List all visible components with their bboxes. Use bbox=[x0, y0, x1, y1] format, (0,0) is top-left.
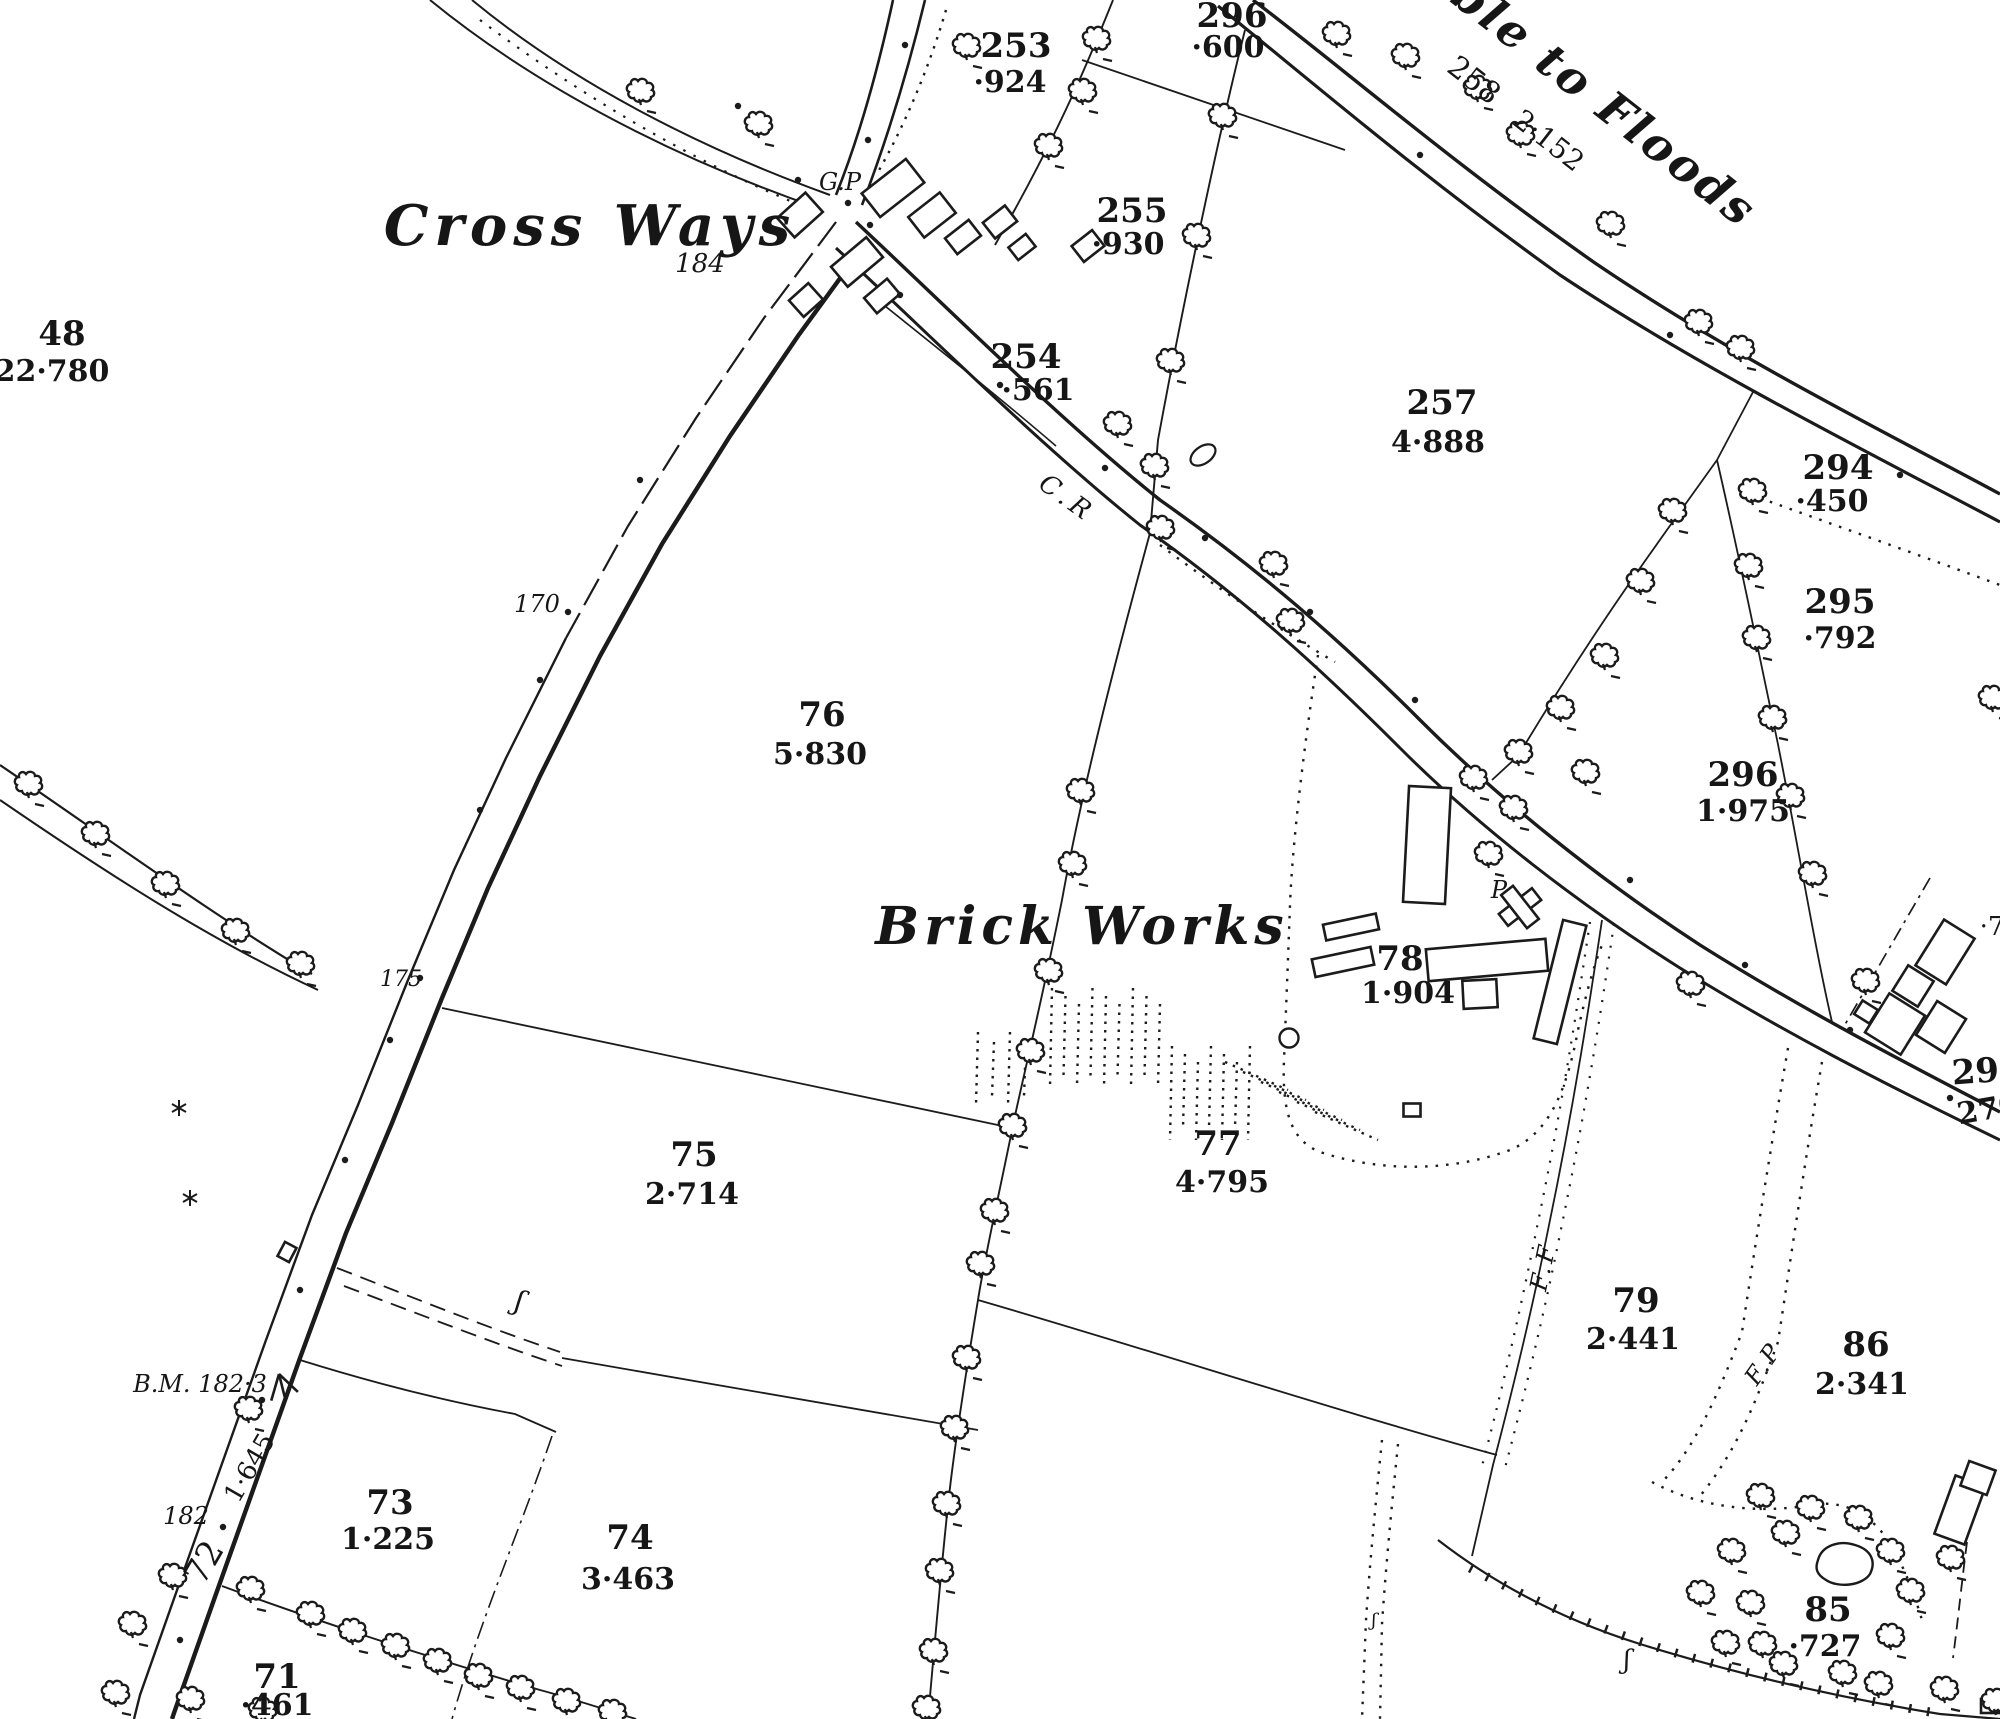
boundary-mereing-dot bbox=[1307, 609, 1313, 615]
boundary-74-75 bbox=[562, 1358, 978, 1430]
boundary-mereing-dot bbox=[1742, 962, 1748, 968]
hedgerow-tree-icon bbox=[465, 1664, 494, 1698]
parcel-257-area: 4·888 bbox=[1391, 425, 1485, 460]
parcel-86-area: 2·341 bbox=[1815, 1367, 1909, 1402]
hamlet-building bbox=[945, 220, 981, 254]
parcel-71-area: ·461 bbox=[240, 1688, 313, 1719]
annotation-brace-mark-1: ʃ bbox=[506, 1282, 532, 1319]
hedgerow-tree-icon bbox=[1500, 796, 1529, 830]
parcel-75-area: 2·714 bbox=[645, 1177, 739, 1212]
brickworks-building bbox=[1403, 786, 1451, 904]
stipple-strip bbox=[1243, 1072, 1306, 1100]
lane-west-line-1 bbox=[0, 765, 312, 974]
parcel-295-number: 295 bbox=[1805, 582, 1876, 622]
hedgerow-tree-icon bbox=[1982, 1689, 2000, 1719]
boundary-mereing-dot bbox=[865, 137, 871, 143]
brickworks-building bbox=[1323, 914, 1379, 941]
hedgerow-tree-icon bbox=[1659, 499, 1688, 533]
annotation-road-area-1645: 1·645 bbox=[218, 1428, 281, 1507]
track-75-dashed-1 bbox=[337, 1268, 560, 1352]
stipple-strip bbox=[1183, 1054, 1185, 1128]
parcel-76-area: 5·830 bbox=[773, 737, 867, 772]
footpath-fp-dotted-1 bbox=[1662, 1048, 1788, 1482]
hamlet-building bbox=[864, 279, 900, 314]
parcel-86-number: 86 bbox=[1842, 1325, 1889, 1365]
pond-orchard bbox=[1817, 1543, 1873, 1585]
bushes bbox=[172, 1100, 197, 1206]
hedgerow-tree-icon bbox=[1069, 79, 1098, 113]
parcel-85-area: ·727 bbox=[1788, 1629, 1861, 1664]
parcel-77-number: 77 bbox=[1194, 1124, 1241, 1164]
road-north-arm-west-line bbox=[836, 0, 893, 195]
hedgerow-tree-icon bbox=[1829, 1661, 1858, 1695]
parcel-297-area: 270 bbox=[1954, 1087, 2000, 1132]
parcel-73-number: 73 bbox=[366, 1483, 413, 1523]
footpaths bbox=[1160, 545, 1922, 1719]
hedgerow-tree-icon bbox=[177, 1687, 206, 1719]
hedgerow-tree-icon bbox=[1505, 740, 1534, 774]
parcel-78-area: 1·904 bbox=[1361, 976, 1455, 1011]
hedgerow-tree-icon bbox=[382, 1634, 411, 1668]
hedgerow-tree-icon bbox=[913, 1696, 942, 1719]
hedgerow-tree-icon bbox=[339, 1619, 368, 1653]
stipple-strip bbox=[976, 1032, 978, 1104]
place-name-cross-ways: Cross Ways bbox=[384, 193, 796, 259]
hedgerow-tree-icon bbox=[999, 1114, 1028, 1148]
hamlet-building bbox=[862, 159, 925, 217]
boundary-mereing-dot bbox=[1897, 472, 1903, 478]
hedgerow-tree-icon bbox=[1260, 552, 1289, 586]
parcel-253-number: 253 bbox=[981, 26, 1052, 66]
parcel-77-area: 4·795 bbox=[1175, 1165, 1269, 1200]
annotation-bench-mark-value: B.M. 182·3 bbox=[132, 1370, 267, 1398]
hedgerow-tree-icon bbox=[1735, 554, 1764, 588]
hedgerow-tree-icon bbox=[287, 952, 316, 986]
hedgerow-tree-icon bbox=[507, 1676, 536, 1710]
hedgerow-tree-icon bbox=[1759, 706, 1788, 740]
hedgerow-tree-icon bbox=[1877, 1624, 1906, 1658]
outlying-building bbox=[1916, 1001, 1966, 1053]
stipple-strip bbox=[992, 1042, 994, 1096]
stipple-strip bbox=[1261, 1082, 1324, 1110]
annotation-edge-fragment-7: ·7 bbox=[1980, 912, 2000, 942]
stipple-strip bbox=[1091, 988, 1093, 1076]
hedgerow-tree-icon bbox=[82, 822, 111, 856]
hedgerow-tree-icon bbox=[1712, 1631, 1741, 1665]
stipple-strip bbox=[1145, 996, 1147, 1076]
hedge-bottom-right bbox=[1438, 1540, 2000, 1719]
parcel-78-number: 78 bbox=[1376, 939, 1423, 979]
annotation-brace-mark-3: ʃ bbox=[1368, 1610, 1380, 1631]
kiln-circle bbox=[1280, 1029, 1299, 1048]
parcel-295-area: ·792 bbox=[1803, 621, 1876, 656]
place-name-brick-works: Brick Works bbox=[873, 896, 1288, 957]
hedgerow-tree-icon bbox=[1083, 27, 1112, 61]
brickworks-building bbox=[1312, 947, 1374, 977]
hedgerow-tree-icon bbox=[1597, 212, 1626, 246]
hedgerow-tree-icon bbox=[1392, 44, 1421, 78]
parcel-257-number: 257 bbox=[1407, 383, 1478, 423]
annotation-fp-abbrev: F.P bbox=[1738, 1337, 1788, 1391]
hedgerow-tree-icon bbox=[981, 1199, 1010, 1233]
hedgerow-tree-icon bbox=[15, 772, 44, 806]
hedgerow-tree-icon bbox=[1059, 852, 1088, 886]
hamlet-building bbox=[1008, 234, 1035, 260]
hedgerow-tree-icon bbox=[1209, 104, 1238, 138]
os-map-sheet: Cross WaysBrick Worksble to Floods2582·1… bbox=[0, 0, 2000, 1719]
road-main-west-line bbox=[566, 222, 836, 638]
hedgerow-tree-icon bbox=[1897, 1579, 1926, 1613]
hedgerow-tree-icon bbox=[1979, 686, 2000, 720]
hedgerow-tree-icon bbox=[1739, 479, 1768, 513]
roads bbox=[0, 0, 2000, 1719]
annotation-road-parcel-258: 258 bbox=[1441, 49, 1508, 112]
parcel-79-area: 2·441 bbox=[1586, 1322, 1680, 1357]
hedgerow-tree-icon bbox=[1747, 1484, 1776, 1518]
stipple-strip bbox=[1064, 996, 1066, 1076]
stipple-strip bbox=[1118, 1004, 1120, 1076]
parcel-73-area: 1·225 bbox=[341, 1522, 435, 1557]
boundary-mereing-dot bbox=[735, 103, 741, 109]
parcel-254-number: 254 bbox=[991, 337, 1062, 377]
hedgerow-tree-icon bbox=[953, 1346, 982, 1380]
parcel-255-area: ·930 bbox=[1091, 227, 1164, 262]
stipple-strip bbox=[1158, 1004, 1160, 1086]
stipple-strip bbox=[1248, 1046, 1250, 1140]
boundary-75-76 bbox=[442, 1008, 1012, 1128]
boundary-mereing-dot bbox=[565, 609, 571, 615]
bush-star-icon bbox=[183, 1190, 197, 1206]
parcel-255-number: 255 bbox=[1097, 191, 1168, 231]
boundary-mereing-dot bbox=[1627, 877, 1633, 883]
hedgerow-tree-icon bbox=[1718, 1539, 1747, 1573]
hedgerow-tree-icon bbox=[237, 1577, 266, 1611]
hedgerow-tree-icon bbox=[953, 34, 982, 68]
boundary-mereing-dot bbox=[845, 200, 851, 206]
footpath-bottom-dotted-2 bbox=[1380, 1444, 1398, 1719]
hedgerow-tree-icon bbox=[1931, 1677, 1960, 1711]
hedgerow-tree-icon bbox=[1572, 760, 1601, 794]
annotation-pump: P bbox=[1490, 876, 1508, 904]
boundary-mereing-dot bbox=[297, 1287, 303, 1293]
hedgerow-tree-icon bbox=[1743, 626, 1772, 660]
map-canvas: Cross WaysBrick Worksble to Floods2582·1… bbox=[0, 0, 2000, 1719]
hedgerow-tree-icon bbox=[1627, 569, 1656, 603]
annotation-ff-abbrev: F.F bbox=[1524, 1239, 1562, 1294]
hedgerow-tree-icon bbox=[1183, 224, 1212, 258]
stipple-strip bbox=[1315, 1112, 1378, 1140]
parcel-48-area: 22·780 bbox=[0, 354, 109, 389]
boundary-mereing-dot bbox=[1412, 697, 1418, 703]
annotation-altitude-175: 175 bbox=[380, 967, 422, 992]
boundary-mereing-dot bbox=[637, 477, 643, 483]
hedgerow-tree-icon bbox=[1035, 959, 1064, 993]
boundary-mereing-dot bbox=[342, 1157, 348, 1163]
lane-northwest-line-1 bbox=[430, 0, 818, 208]
boundary-73-top bbox=[300, 1360, 556, 1432]
boundary-mereing-dot bbox=[477, 807, 483, 813]
footpath-bottom-dotted-1 bbox=[1362, 1440, 1382, 1719]
pond-small bbox=[1187, 440, 1220, 470]
parcel-253-area: ·924 bbox=[973, 65, 1046, 100]
boundary-76-77-hedge bbox=[928, 533, 1150, 1719]
stipple-strip bbox=[1225, 1062, 1288, 1090]
road-floods-north-line bbox=[1253, 0, 2000, 494]
survey-dots bbox=[177, 42, 1953, 1643]
annotation-guide-post: G.P bbox=[819, 168, 862, 196]
trees bbox=[15, 22, 2000, 1719]
hedgerow-tree-icon bbox=[119, 1612, 148, 1646]
parcel-74-area: 3·463 bbox=[581, 1562, 675, 1597]
hedgerow-tree-icon bbox=[1737, 1591, 1766, 1625]
footpath-dotted-south-of-road bbox=[1160, 545, 1335, 662]
boundary-295-296-hedge bbox=[1717, 460, 1832, 1022]
outlying-building bbox=[278, 1242, 297, 1262]
boundary-mereing-dot bbox=[1102, 465, 1108, 471]
hedgerow-tree-icon bbox=[1772, 1521, 1801, 1555]
lane-west-line-2 bbox=[0, 800, 318, 990]
hedgerow-tree-icon bbox=[1323, 22, 1352, 56]
hedgerow-tree-icon bbox=[1799, 862, 1828, 896]
hedgerow-tree-icon bbox=[1104, 412, 1133, 446]
boundary-mereing-dot bbox=[795, 177, 801, 183]
boundary-ff-fence bbox=[1472, 920, 1602, 1556]
hedgerow-tree-icon bbox=[1687, 1581, 1716, 1615]
parcel-296-area: ·600 bbox=[1191, 30, 1264, 65]
boundary-mereing-dot bbox=[1667, 332, 1673, 338]
hedgerow-tree-icon bbox=[599, 1700, 628, 1719]
hedgerow-tree-icon bbox=[1852, 969, 1881, 1003]
labels: Cross WaysBrick Worksble to Floods2582·1… bbox=[0, 0, 2000, 1719]
boundary-mereing-dot bbox=[902, 42, 908, 48]
hedgerow-tree-icon bbox=[1727, 336, 1756, 370]
hedgerow-tree-icon bbox=[1591, 644, 1620, 678]
parcel-294-number: 294 bbox=[1803, 448, 1874, 488]
boundary-mereing-dot bbox=[1417, 152, 1423, 158]
hamlet-building bbox=[983, 206, 1017, 239]
hedgerow-tree-icon bbox=[1017, 1039, 1046, 1073]
bush-star-icon bbox=[172, 1100, 186, 1116]
parcel-74-number: 74 bbox=[606, 1518, 653, 1558]
parcel-79-number: 79 bbox=[1612, 1281, 1659, 1321]
boundary-mereing-dot bbox=[867, 222, 873, 228]
parcel-75-number: 75 bbox=[670, 1135, 717, 1175]
parcel-294-area: ·450 bbox=[1795, 484, 1868, 519]
hedgerow-tree-icon bbox=[933, 1492, 962, 1526]
hedgerow-tree-icon bbox=[627, 79, 656, 113]
hedgerow-tree-icon bbox=[297, 1602, 326, 1636]
boundary-mereing-dot bbox=[220, 1524, 226, 1530]
stipple-strip bbox=[1131, 988, 1133, 1086]
boundary-mereing-dot bbox=[1847, 1027, 1853, 1033]
hedgerow-tree-icon bbox=[1685, 310, 1714, 344]
hedgerow-tree-icon bbox=[1845, 1506, 1874, 1540]
stipple-strip bbox=[1077, 1004, 1079, 1086]
hedgerow-tree-icon bbox=[424, 1649, 453, 1683]
boundary-mereing-dot bbox=[1947, 1095, 1953, 1101]
annotation-cr-abbrev: C.R bbox=[1033, 468, 1101, 529]
hedgerow-tree-icon bbox=[1937, 1546, 1966, 1580]
stipple-strip bbox=[1170, 1046, 1172, 1140]
hedgerow-tree-icon bbox=[745, 112, 774, 146]
boundary-mereing-dot bbox=[537, 677, 543, 683]
hedgerow-tree-icon bbox=[920, 1639, 949, 1673]
stipple-strip bbox=[1050, 988, 1052, 1086]
annotation-altitude-170: 170 bbox=[514, 590, 560, 618]
stipple-strip bbox=[1297, 1102, 1360, 1130]
hedgerow-tree-icon bbox=[1475, 842, 1504, 876]
place-name-liable-to-floods: ble to Floods bbox=[1442, 0, 1768, 238]
parcel-297-number: 297 bbox=[1950, 1049, 2000, 1094]
stipple-strip bbox=[1209, 1046, 1211, 1128]
hamlet-building bbox=[908, 192, 956, 237]
stipple-strip bbox=[1104, 996, 1106, 1086]
stipple-strip bbox=[1235, 1062, 1237, 1128]
brickworks-yard-dotted-enclosure bbox=[1284, 655, 1602, 1167]
brickworks-building bbox=[1426, 939, 1548, 981]
parcel-48-number: 48 bbox=[38, 314, 85, 354]
brickworks-building bbox=[1404, 1104, 1421, 1117]
hedgerow-tree-icon bbox=[1677, 972, 1706, 1006]
boundary-mereing-dot bbox=[177, 1637, 183, 1643]
hedgerow-tree-icon bbox=[553, 1689, 582, 1719]
parcel-85-number: 85 bbox=[1804, 1590, 1851, 1630]
footpath-fp-dotted-2 bbox=[1700, 1062, 1822, 1496]
road-main-east-line bbox=[172, 240, 868, 1719]
stipple-strip bbox=[1008, 1032, 1010, 1104]
parcel-296-number: 296 bbox=[1708, 755, 1779, 795]
hedgerow-tree-icon bbox=[1157, 349, 1186, 383]
hedgerow-tree-icon bbox=[1547, 696, 1576, 730]
parcel-76-number: 76 bbox=[798, 695, 845, 735]
hedgerow-tree-icon bbox=[1141, 454, 1170, 488]
hedgerow-tree-icon bbox=[152, 872, 181, 906]
boundary-mereing-dot bbox=[387, 1037, 393, 1043]
boundary-77-bottom bbox=[978, 1300, 1497, 1455]
annotation-brace-mark-2: ʃ bbox=[1618, 1645, 1634, 1675]
parcel-254-area: ·561 bbox=[1001, 373, 1074, 408]
brickworks-building bbox=[1462, 979, 1497, 1009]
road-north-arm-fence-dotted bbox=[878, 10, 946, 172]
boundary-mereing-dot bbox=[897, 292, 903, 298]
buildings-brickworks bbox=[1280, 786, 1587, 1117]
parcel-296-area: 1·975 bbox=[1696, 794, 1790, 829]
hedgerow-tree-icon bbox=[102, 1681, 131, 1715]
track-75-dashed-2 bbox=[344, 1286, 562, 1366]
brickworks-stipple-yard bbox=[976, 988, 1378, 1140]
hedgerow-tree-icon bbox=[1797, 1496, 1826, 1530]
hedgerow-tree-icon bbox=[1460, 766, 1489, 800]
boundary-mereing-dot bbox=[1202, 535, 1208, 541]
boundary-294-stem bbox=[1717, 392, 1753, 460]
annotation-altitude-182: 182 bbox=[163, 1502, 209, 1530]
annotation-altitude-184: 184 bbox=[675, 249, 725, 279]
